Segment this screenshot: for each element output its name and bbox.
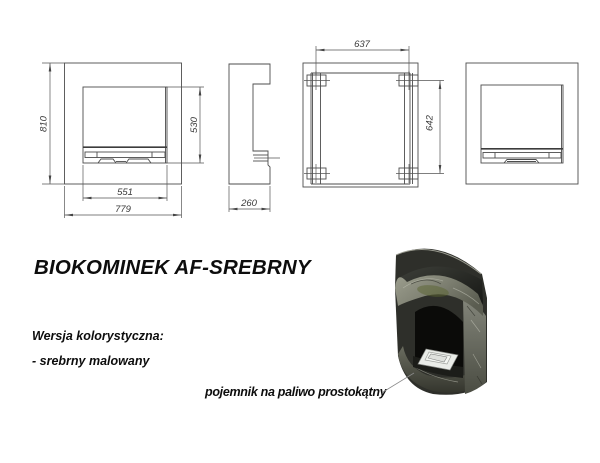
dim-overall-height: 810 — [39, 115, 50, 132]
side-profile-outline — [229, 64, 270, 184]
dim-opening-width: 551 — [117, 187, 133, 198]
dim-mount-width: 637 — [354, 39, 371, 50]
product-3d-render — [383, 236, 500, 406]
dim-mount-width-group: 637 — [316, 39, 409, 75]
front2-firebox-opening — [481, 85, 563, 163]
dim-overall-width: 779 — [115, 204, 132, 215]
dim-overall-height-group: 810 — [39, 63, 65, 184]
product-title: BIOKOMINEK AF-SREBRNY — [34, 256, 311, 280]
dim-opening-height: 530 — [189, 116, 200, 133]
side-view: 260 — [229, 64, 280, 212]
front-outer-frame — [65, 63, 182, 184]
dim-depth: 260 — [240, 198, 258, 209]
dim-mount-height: 642 — [425, 114, 436, 131]
dim-depth-group: 260 — [229, 186, 270, 212]
color-section-label: Wersja kolorystyczna: — [32, 329, 164, 343]
spec-sheet: 810 530 551 779 — [0, 0, 600, 463]
color-variant-label: - srebrny malowany — [32, 354, 149, 368]
fuel-container-callout: pojemnik na paliwo prostokątny — [205, 385, 386, 399]
side-burner-bracket — [253, 155, 280, 161]
technical-drawing-views: 810 530 551 779 — [0, 0, 600, 232]
dim-opening-height-group: 530 — [167, 87, 204, 163]
front-view: 810 530 551 779 — [39, 63, 204, 218]
front-view-plain — [466, 63, 578, 184]
front-burner-shelf — [83, 147, 167, 163]
front2-burner-shelf — [481, 149, 563, 163]
dim-mount-height-group: 642 — [422, 81, 444, 174]
rear-mounting-view: 637 642 — [303, 39, 444, 187]
callout-leader-line — [383, 373, 414, 392]
dim-opening-width-group: 551 — [83, 165, 167, 201]
